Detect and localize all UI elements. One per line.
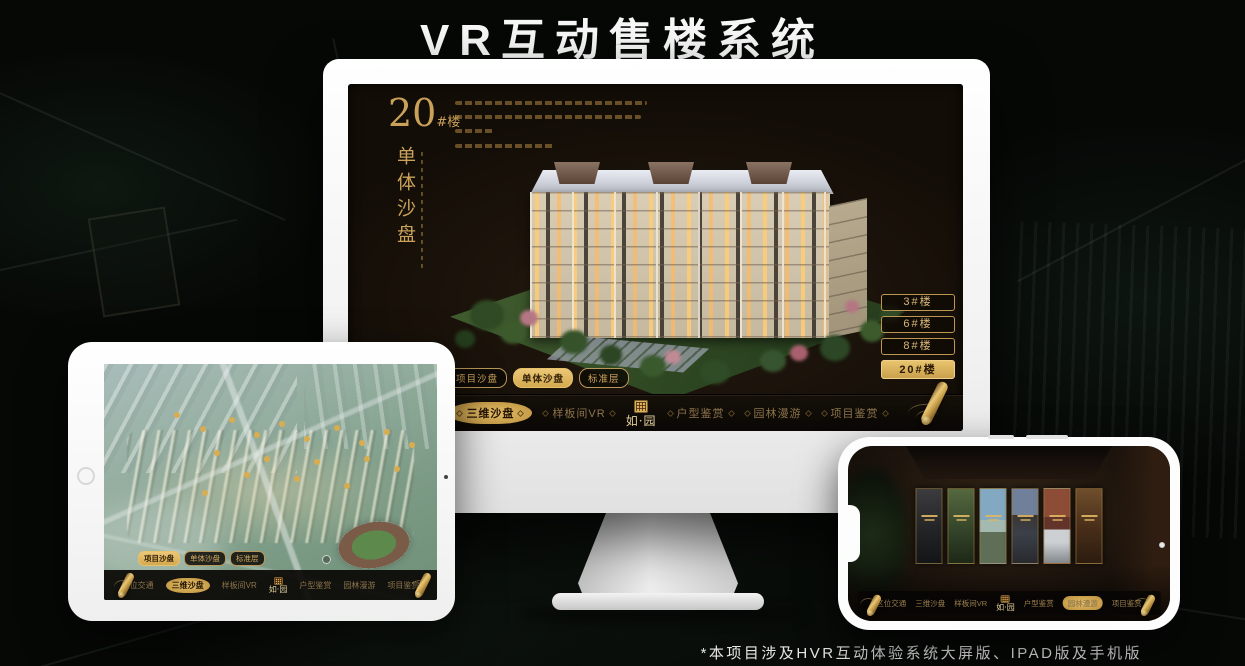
tab-single-sandbox[interactable]: 单体沙盘 (184, 551, 226, 566)
tree (700, 360, 730, 384)
diamond-ornament-icon (805, 409, 812, 416)
description-text-line (455, 129, 493, 133)
nav-item-project-gallery[interactable]: 项目鉴赏 (822, 405, 888, 421)
view-tabs: 项目沙盘 单体沙盘 标准层 (447, 368, 629, 388)
monitor-stand-base (552, 593, 764, 610)
roof-dormer (554, 162, 600, 184)
scroll-menu-icon[interactable] (1134, 594, 1156, 616)
diamond-ornament-icon (821, 409, 828, 416)
tab-standard-floor[interactable]: 标准层 (230, 551, 265, 566)
courtyard-pergola (906, 446, 1112, 479)
panel-label (985, 515, 1001, 517)
nav-item-unit-gallery[interactable]: 户型鉴赏 (668, 405, 734, 421)
nav-item-unit-gallery[interactable]: 户型鉴赏 (299, 580, 331, 591)
scroll-menu-icon[interactable] (860, 594, 882, 616)
tablet-bottom-nav: 区位交通 三维沙盘 样板间VR 如·园 户型鉴赏 园林漫游 项目鉴赏 (104, 570, 437, 600)
panel-garden-scene[interactable] (948, 488, 975, 564)
footnote-text: *本项目涉及HVR互动体验系统大屏版、IPAD版及手机版 (701, 642, 1142, 663)
nav-item-label: 园林漫游 (754, 405, 802, 421)
panel-interior-scene[interactable] (1076, 488, 1103, 564)
background-plaque (88, 207, 181, 318)
nav-item-label: 三维沙盘 (466, 405, 514, 421)
monitor-stand-neck (578, 511, 738, 595)
building-number-badges (174, 412, 180, 418)
blossom-tree (790, 345, 808, 361)
blossom-tree (665, 350, 681, 364)
poster-canvas: VR互动售楼系统 20#楼 单体沙盘 (0, 0, 1245, 666)
description-text-line (455, 101, 647, 105)
building-title: 20#楼 (388, 94, 460, 132)
panel-label (953, 515, 969, 517)
tree (760, 350, 786, 372)
phone-side-button (988, 435, 1014, 439)
brand-name: 如·园 (626, 415, 657, 427)
tablet-camera-icon (444, 475, 448, 479)
vertical-caption-texture (421, 152, 423, 270)
phone-device: 区位交通 三维沙盘 样板间VR 如·园 户型鉴赏 园林漫游 项目鉴赏 (838, 437, 1180, 630)
floor-button-3[interactable]: 3#楼 (881, 294, 955, 311)
roof-dormer (648, 162, 694, 184)
nav-item-label: 户型鉴赏 (677, 405, 725, 421)
nav-item-garden-roam[interactable]: 园林漫游 (1063, 596, 1103, 610)
diamond-ornament-icon (456, 409, 463, 416)
phone-notch (848, 505, 860, 562)
description-text-line (455, 115, 641, 119)
nav-item-3d-sandbox[interactable]: 三维沙盘 (915, 598, 945, 609)
blossom-tree (845, 300, 859, 313)
tree (560, 330, 588, 354)
scroll-menu-icon[interactable] (110, 572, 136, 598)
tablet-screen: 项目沙盘 单体沙盘 标准层 区位交通 三维沙盘 样板间VR 如·园 户型鉴赏 园… (104, 364, 437, 600)
tree (820, 335, 850, 361)
building-facade (530, 192, 830, 338)
floor-button-8[interactable]: 8#楼 (881, 338, 955, 355)
tree (640, 355, 666, 377)
tab-standard-floor[interactable]: 标准层 (579, 368, 629, 388)
nav-item-3d-sandbox[interactable]: 三维沙盘 (166, 578, 210, 593)
blossom-tree (520, 310, 538, 326)
phone-screen: 区位交通 三维沙盘 样板间VR 如·园 户型鉴赏 园林漫游 项目鉴赏 (848, 446, 1170, 621)
brand-name: 如·园 (269, 586, 288, 594)
panel-label (921, 515, 937, 517)
diamond-ornament-icon (517, 409, 524, 416)
floor-button-20-active[interactable]: 20#楼 (881, 360, 955, 379)
scroll-menu-icon[interactable] (907, 380, 947, 426)
building-subtitle-vertical: 单体沙盘 (392, 146, 419, 306)
nav-item-label: 样板间VR (552, 405, 605, 421)
nav-item-unit-gallery[interactable]: 户型鉴赏 (1024, 598, 1054, 609)
floor-button-6[interactable]: 6#楼 (881, 316, 955, 333)
building-side-facade (829, 198, 867, 338)
brand-logo: 如·园 (996, 595, 1015, 612)
tab-single-sandbox[interactable]: 单体沙盘 (513, 368, 573, 388)
scene-panel-strip (916, 488, 1103, 564)
tree (455, 330, 475, 348)
phone-camera-icon (1159, 542, 1165, 548)
panel-label (1081, 515, 1097, 517)
tablet-view-tabs: 项目沙盘 单体沙盘 标准层 (138, 551, 265, 566)
phone-side-button (1026, 435, 1068, 439)
diamond-ornament-icon (667, 409, 674, 416)
building-number: 20 (388, 91, 436, 135)
brand-logo: 如·园 (269, 577, 288, 594)
seal-icon (1001, 595, 1010, 603)
tree (600, 345, 622, 365)
diamond-ornament-icon (728, 409, 735, 416)
panel-sketch-scene[interactable] (916, 488, 943, 564)
description-text-line (455, 144, 555, 148)
nav-item-garden-roam[interactable]: 园林漫游 (745, 405, 811, 421)
roof-dormer (746, 162, 792, 184)
nav-item-model-room-vr[interactable]: 样板间VR (543, 405, 614, 421)
panel-label (1017, 515, 1033, 517)
scroll-menu-icon[interactable] (407, 572, 433, 598)
panel-autumn-scene[interactable] (1044, 488, 1071, 564)
seal-icon (634, 400, 648, 413)
tablet-device: 项目沙盘 单体沙盘 标准层 区位交通 三维沙盘 样板间VR 如·园 户型鉴赏 园… (68, 342, 455, 621)
tab-project-sandbox[interactable]: 项目沙盘 (447, 368, 507, 388)
compass-icon (322, 555, 331, 564)
phone-bottom-nav: 区位交通 三维沙盘 样板间VR 如·园 户型鉴赏 园林漫游 项目鉴赏 (858, 591, 1161, 615)
nav-item-label: 项目鉴赏 (831, 405, 879, 421)
panel-dusk-tower-scene[interactable] (1012, 488, 1039, 564)
brand-name: 如·园 (996, 604, 1015, 612)
nav-item-3d-sandbox[interactable]: 三维沙盘 (448, 402, 532, 424)
panel-daytime-tower-scene[interactable] (980, 488, 1007, 564)
brand-logo: 如·园 (626, 400, 657, 427)
nav-item-model-room-vr[interactable]: 样板间VR (222, 580, 257, 591)
tab-project-sandbox[interactable]: 项目沙盘 (138, 551, 180, 566)
panel-label (1049, 515, 1065, 517)
diamond-ornament-icon (882, 409, 889, 416)
diamond-ornament-icon (744, 409, 751, 416)
diamond-ornament-icon (542, 409, 549, 416)
diamond-ornament-icon (609, 409, 616, 416)
tree (470, 300, 504, 330)
tablet-home-button[interactable] (77, 467, 95, 485)
nav-item-garden-roam[interactable]: 园林漫游 (343, 580, 375, 591)
nav-item-model-room-vr[interactable]: 样板间VR (954, 598, 987, 609)
seal-icon (274, 577, 283, 585)
